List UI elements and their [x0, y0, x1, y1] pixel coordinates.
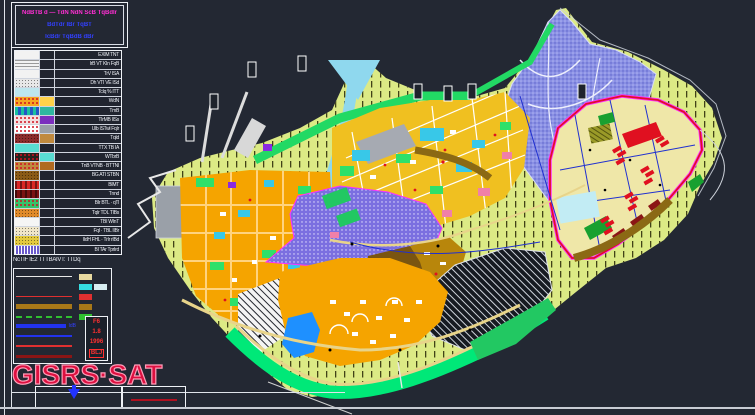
legend-row-label: TqIr TDL TIBs: [55, 209, 121, 217]
legend-swatch-primary: [15, 181, 40, 189]
legend-row-label: Tnnd: [55, 190, 121, 198]
line-legend-symbol: [16, 355, 76, 358]
footer-box-red-line: [122, 386, 186, 407]
line-legend-symbol: [16, 316, 76, 318]
line-legend: IdB: [13, 268, 112, 364]
legend-row-label: TrV ISA: [55, 70, 121, 78]
legend-swatch-secondary: [40, 97, 55, 105]
line-legend-row: [16, 302, 109, 312]
line-legend-symbol: [16, 345, 76, 347]
legend-row: TcIq % ITT: [15, 88, 121, 97]
legend-swatch-secondary: [40, 107, 55, 115]
legend-row-label: IrB VT KIn FqB: [55, 60, 121, 68]
legend-swatch-primary: [15, 236, 40, 244]
legend-row: FqI · TBL IIBr: [15, 227, 121, 236]
legend-row-label: TcIq % ITT: [55, 88, 121, 96]
legend-swatch-primary: [15, 199, 40, 207]
legend-swatch-primary: [15, 209, 40, 217]
legend-swatch-secondary: [40, 125, 55, 133]
legend-row: IrB VT KIn FqB: [15, 60, 121, 69]
legend-swatch-secondary: [40, 236, 55, 244]
legend-row-label: BIMT: [55, 181, 121, 189]
legend-row: TBI WInT: [15, 218, 121, 227]
legend-row: TrV ISA: [15, 70, 121, 79]
legend-swatch-secondary: [40, 134, 55, 142]
line-legend-row: [16, 292, 109, 302]
legend-swatch-secondary: [40, 209, 55, 217]
legend-swatch-secondary: [40, 227, 55, 235]
legend-swatch-primary: [15, 70, 40, 78]
legend-swatch-secondary: [40, 79, 55, 87]
stamp-line-1: F6: [93, 319, 100, 326]
legend-row: Ulb ISTwl FqIr: [15, 125, 121, 134]
sheet-border-left-outer: [4, 0, 5, 415]
sheet-border-bottom: [0, 407, 755, 409]
legend-row: WTbrB: [15, 153, 121, 162]
legend-row: BG ATI STBN: [15, 171, 121, 180]
legend-swatch-primary: [15, 97, 40, 105]
title-line-3: IcBdr TqBdB dBr: [45, 34, 94, 41]
legend-row-label: IIdH FHL · TrIr rIBd: [55, 236, 121, 244]
legend-row-label: TBI WInT: [55, 218, 121, 226]
legend-row-label: BG ATI STBN: [55, 171, 121, 179]
legend-row-label: EXIM TNT: [55, 51, 121, 59]
legend-swatch-primary: [15, 246, 40, 254]
legend-swatch-primary: [15, 171, 40, 179]
legend-swatch-secondary: [40, 218, 55, 226]
legend-row-label: TTX TB IA: [55, 144, 121, 152]
legend-swatch-secondary: [40, 199, 55, 207]
legend-row-label: WdN: [55, 97, 121, 105]
cad-sheet: NdBTB d — TdN NdN ScB TqBdIr BdTdr IBr T…: [0, 0, 755, 415]
legend-row-label: TqId: [55, 134, 121, 142]
line-legend-note: IdB: [68, 323, 76, 329]
legend-swatch-secondary: [40, 116, 55, 124]
legend-swatch-primary: [15, 190, 40, 198]
legend-row: TmB: [15, 107, 121, 116]
legend-swatch-secondary: [40, 60, 55, 68]
legend-swatch-primary: [15, 79, 40, 87]
stamp-line-4: BLJ: [89, 349, 104, 358]
legend-row: Dh VTI VE ISd: [15, 79, 121, 88]
legend-row-label: TmB: [55, 107, 121, 115]
line-legend-symbol: [16, 296, 76, 297]
legend-row: EXIM TNT: [15, 51, 121, 60]
legend-swatch-primary: [15, 51, 40, 59]
line-legend-chip-1: [79, 284, 92, 290]
legend-swatch-primary: [15, 144, 40, 152]
legend-swatch-secondary: [40, 51, 55, 59]
legend-swatch-primary: [15, 107, 40, 115]
legend-row: BIMT: [15, 181, 121, 190]
line-legend-symbol: [16, 276, 76, 277]
legend-swatch-secondary: [40, 246, 55, 254]
legend-row-label: WTbrB: [55, 153, 121, 161]
legend-row: TTX TB IA: [15, 144, 121, 153]
legend-swatch-secondary: [40, 144, 55, 152]
blue-arrow-icon: [68, 389, 80, 399]
legend-swatch-secondary: [40, 171, 55, 179]
line-legend-chip-1: [79, 274, 92, 280]
line-legend-row: [16, 272, 109, 282]
stamp-box: F6 1.8 1996 BLJ: [85, 316, 108, 361]
legend-row: WdN: [15, 97, 121, 106]
legend-swatch-secondary: [40, 181, 55, 189]
legend-swatch-primary: [15, 153, 40, 161]
line-legend-chip-1: [79, 304, 92, 310]
legend-row: TqIr TDL TIBs: [15, 209, 121, 218]
legend-row: BI TAr TprIrd: [15, 246, 121, 254]
line-legend-chip-2: [94, 284, 107, 290]
line-legend-symbol: [16, 335, 76, 337]
legend-row-label: BI TAr TprIrd: [55, 246, 121, 254]
title-line-2: BdTdr IBr TqBT: [47, 22, 92, 29]
legend-table: EXIM TNT IrB VT KIn FqB TrV ISA Dh VTI V…: [14, 50, 122, 255]
title-line-1: NdBTB d — TdN NdN ScB TqBdIr: [22, 10, 117, 17]
legend-swatch-secondary: [40, 70, 55, 78]
sheet-border-left-inner: [11, 2, 12, 407]
legend-swatch-secondary: [40, 190, 55, 198]
stamp-line-2: 1.8: [92, 329, 100, 336]
legend-row: TIrMB IISs: [15, 116, 121, 125]
title-block: NdBTB d — TdN NdN ScB TqBdIr BdTdr IBr T…: [11, 2, 128, 48]
legend-swatch-primary: [15, 218, 40, 226]
legend-row-label: Dh VTI VE ISd: [55, 79, 121, 87]
legend-row-label: BIr BTL · qTl: [55, 199, 121, 207]
legend-swatch-primary: [15, 116, 40, 124]
legend-swatch-primary: [15, 134, 40, 142]
legend-row-label: TIrMB IISs: [55, 116, 121, 124]
legend-swatch-primary: [15, 60, 40, 68]
legend-row: TqId: [15, 134, 121, 143]
legend-row: TnB VTNB · BTTNI: [15, 162, 121, 171]
legend-swatch-secondary: [40, 88, 55, 96]
legend-swatch-primary: [15, 162, 40, 170]
legend-swatch-primary: [15, 125, 40, 133]
legend-row: BIr BTL · qTl: [15, 199, 121, 208]
legend-swatch-primary: [15, 88, 40, 96]
legend-row-label: FqI · TBL IIBr: [55, 227, 121, 235]
legend-swatch-secondary: [40, 162, 55, 170]
legend-row: IIdH FHL · TrIr rIBd: [15, 236, 121, 245]
legend-row: Tnnd: [15, 190, 121, 199]
footer-box-north-arrow: [35, 386, 122, 407]
legend-row-label: TnB VTNB · BTTNI: [55, 162, 121, 170]
red-line-symbol: [131, 399, 177, 401]
line-legend-symbol: [16, 304, 76, 309]
line-legend-chip-1: [79, 294, 92, 300]
legend-swatch-secondary: [40, 153, 55, 161]
legend-row-label: Ulb ISTwl FqIr: [55, 125, 121, 133]
line-legend-symbol: IdB: [16, 323, 76, 329]
line-legend-row: [16, 282, 109, 292]
legend-swatch-primary: [15, 227, 40, 235]
stamp-line-3: 1996: [90, 339, 103, 346]
legend2-caption: NcTIF IE2 TTTBAIVT: TTDq: [13, 257, 128, 263]
title-block-inner: NdBTB d — TdN NdN ScB TqBdIr BdTdr IBr T…: [15, 5, 124, 45]
